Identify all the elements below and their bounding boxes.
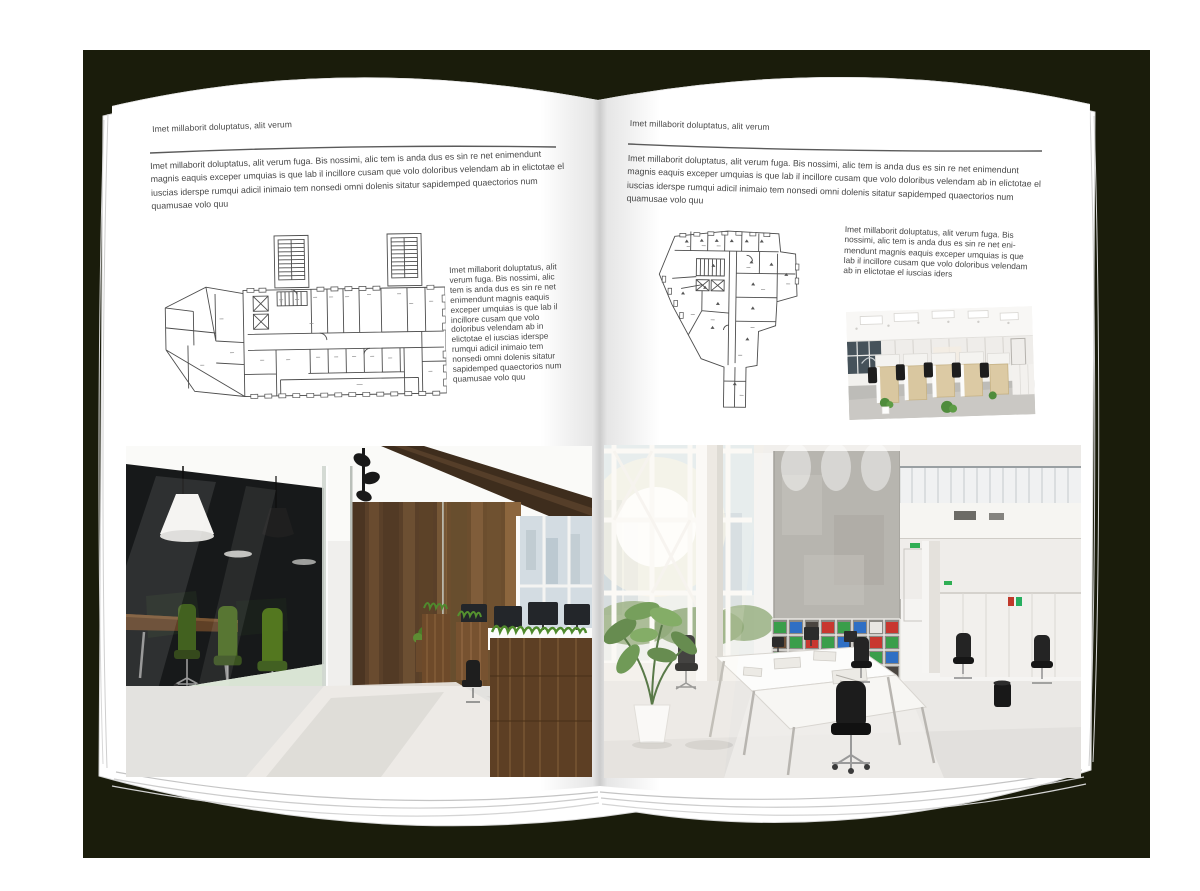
- left-page-photo: [126, 446, 592, 777]
- right-page-side-text: Imet millaborit doluptatus, alit verum f…: [843, 224, 1037, 282]
- right-page-small-photo: [846, 306, 1035, 420]
- right-floor-plan: [649, 224, 810, 418]
- magazine-spread-mockup: Imet millaborit doluptatus, alit verum I…: [0, 0, 1200, 891]
- left-page-side-text: Imet millaborit doluptatus, alit verum f…: [449, 262, 567, 385]
- left-floor-plan: [158, 231, 447, 416]
- right-page-photo: [604, 445, 1081, 778]
